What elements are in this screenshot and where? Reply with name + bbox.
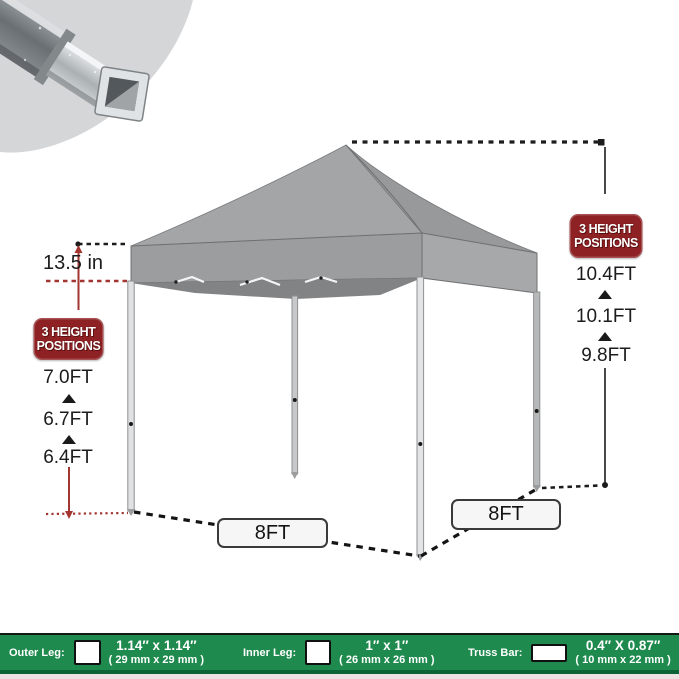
tube-open-end	[95, 67, 150, 122]
canopy-dimensions-infographic: 13.5 in 3 HEIGHT POSITIONS 7.0FT 6.7FT 6…	[0, 0, 679, 679]
up-triangle-icon	[598, 290, 612, 299]
leg-adjust-buttons	[129, 398, 539, 446]
roof-left-face	[131, 145, 422, 246]
spec-size: 0.4″ X 0.87″	[575, 639, 670, 654]
base-width-box-side: 8FT	[451, 499, 561, 530]
outer-leg-square-icon	[74, 640, 101, 665]
badge-line1: 3 HEIGHT	[570, 222, 643, 236]
height-positions-badge-right: 3 HEIGHT POSITIONS	[570, 214, 643, 258]
valance-height-label: 13.5 in	[43, 253, 103, 273]
spec-metric: ( 10 mm x 22 mm )	[575, 654, 670, 666]
badge-line1: 3 HEIGHT	[33, 325, 103, 339]
leg-height-label-low: 6.4FT	[36, 448, 100, 467]
leg-tube-photo-inset	[0, 0, 193, 153]
leg-height-label-high: 7.0FT	[36, 368, 100, 387]
spec-label: Truss Bar:	[468, 647, 522, 659]
page-bottom-strip	[0, 674, 679, 679]
ground-red-dotted-line	[46, 513, 128, 514]
height-positions-badge-left: 3 HEIGHT POSITIONS	[33, 318, 103, 360]
base-width-label: 8FT	[488, 503, 524, 526]
spec-metric: ( 29 mm x 29 mm )	[109, 654, 204, 666]
truss-bar-rect-icon	[531, 644, 567, 662]
spec-label: Outer Leg:	[9, 647, 65, 659]
up-triangle-icon	[598, 332, 612, 341]
peak-height-label-mid: 10.1FT	[568, 307, 644, 326]
up-triangle-icon	[62, 394, 76, 403]
spec-size: 1.14″ x 1.14″	[109, 639, 204, 654]
spec-label: Inner Leg:	[243, 647, 296, 659]
badge-line2: POSITIONS	[33, 339, 103, 353]
base-width-label: 8FT	[255, 522, 291, 545]
peak-height-label-low: 9.8FT	[568, 346, 644, 365]
spec-inner-leg: Inner Leg: 1″ x 1″ ( 26 mm x 26 mm )	[243, 635, 435, 670]
badge-line2: POSITIONS	[570, 236, 643, 250]
spec-outer-leg: Outer Leg: 1.14″ x 1.14″ ( 29 mm x 29 mm…	[9, 635, 204, 670]
leg-height-label-mid: 6.7FT	[36, 410, 100, 429]
up-triangle-icon	[62, 435, 76, 444]
ground-dashed-line-right	[542, 486, 599, 489]
inner-leg-square-icon	[305, 640, 331, 665]
peak-height-label-high: 10.4FT	[568, 265, 644, 284]
spec-metric: ( 26 mm x 26 mm )	[339, 654, 434, 666]
spec-truss-bar: Truss Bar: 0.4″ X 0.87″ ( 10 mm x 22 mm …	[468, 635, 671, 670]
spec-bar: Outer Leg: 1.14″ x 1.14″ ( 29 mm x 29 mm…	[0, 633, 679, 670]
spec-size: 1″ x 1″	[339, 639, 434, 654]
base-width-box-front: 8FT	[217, 518, 328, 548]
